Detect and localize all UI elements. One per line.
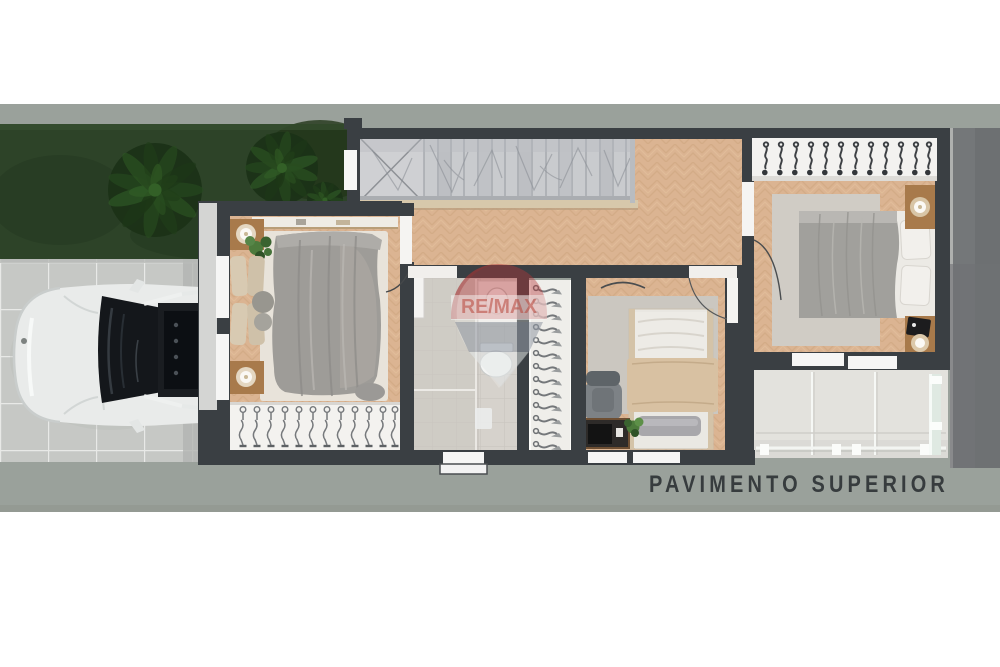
- svg-text:RE/MAX: RE/MAX: [461, 296, 538, 318]
- svg-text:PAVIMENTO SUPERIOR: PAVIMENTO SUPERIOR: [649, 471, 949, 498]
